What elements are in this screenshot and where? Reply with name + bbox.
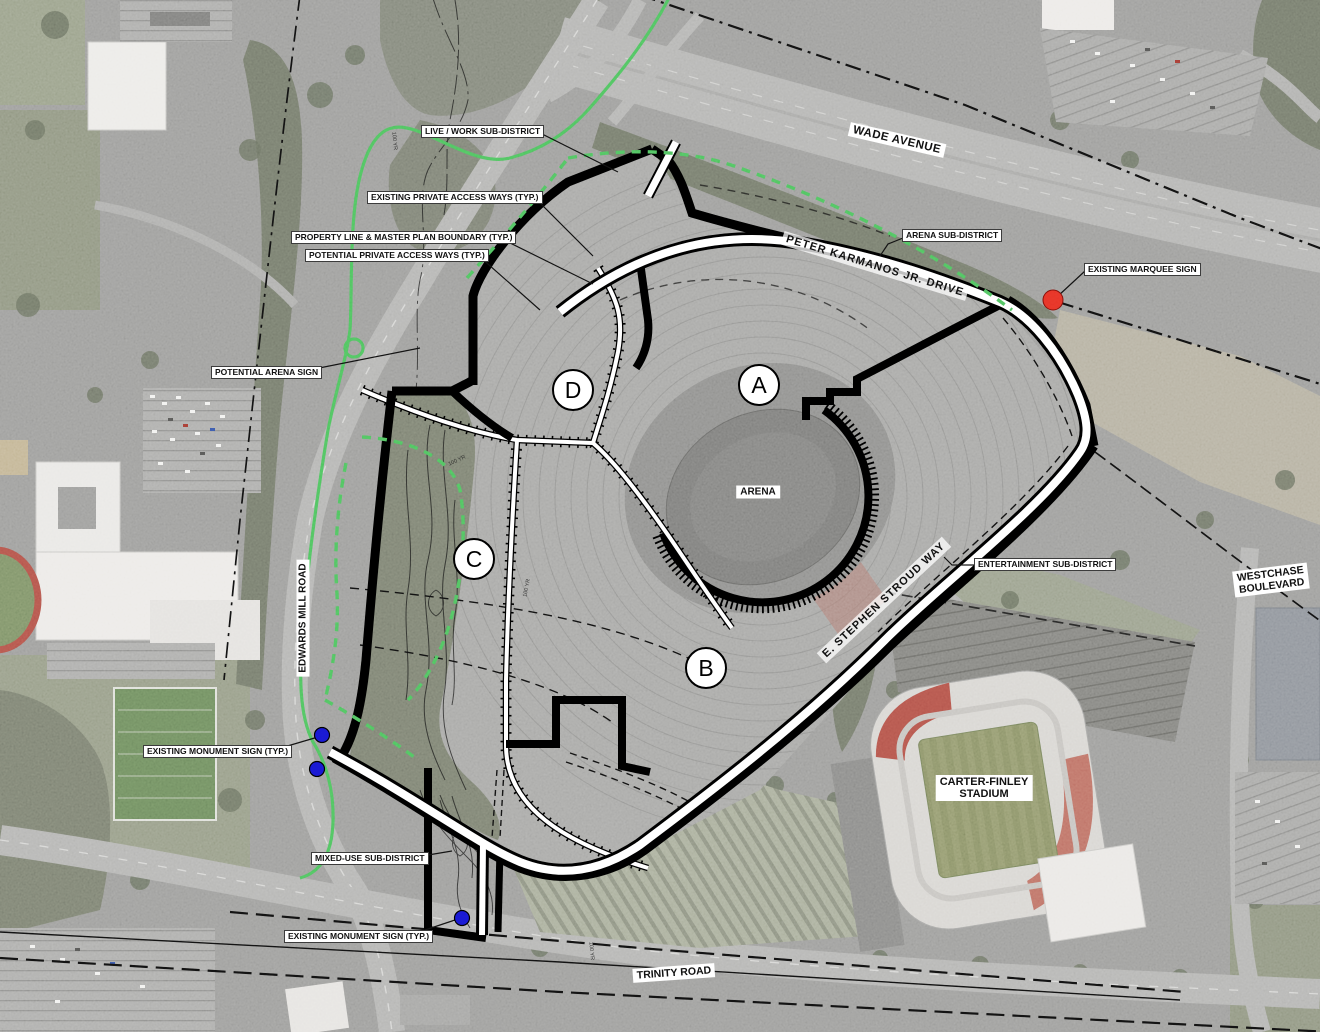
callout-property-line: PROPERTY LINE & MASTER PLAN BOUNDARY (TY… <box>291 231 516 244</box>
callout-potential-arena-sign: POTENTIAL ARENA SIGN <box>211 366 322 379</box>
callout-existing-marquee-sign: EXISTING MARQUEE SIGN <box>1084 263 1201 276</box>
parcel-circle-d: D <box>552 369 594 411</box>
parcel-circle-b: B <box>685 647 727 689</box>
callout-existing-monument-sign-2: EXISTING MONUMENT SIGN (TYP.) <box>284 930 433 943</box>
parcel-circle-c: C <box>453 538 495 580</box>
carter-finley-line2: STADIUM <box>959 788 1008 800</box>
road-label-edwards-mill: EDWARDS MILL ROAD <box>297 559 310 676</box>
plan-overlay <box>0 0 1320 1032</box>
callout-live-work: LIVE / WORK SUB-DISTRICT <box>421 125 544 138</box>
callout-existing-monument-sign: EXISTING MONUMENT SIGN (TYP.) <box>143 745 292 758</box>
master-plan-map: LIVE / WORK SUB-DISTRICT EXISTING PRIVAT… <box>0 0 1320 1032</box>
place-label-arena: ARENA <box>736 486 780 499</box>
carter-finley-line1: CARTER-FINLEY <box>940 776 1029 788</box>
callout-existing-access: EXISTING PRIVATE ACCESS WAYS (TYP.) <box>367 191 543 204</box>
place-label-carter-finley: CARTER-FINLEY STADIUM <box>936 775 1033 801</box>
parcel-circle-a: A <box>738 364 780 406</box>
callout-potential-access: POTENTIAL PRIVATE ACCESS WAYS (TYP.) <box>305 249 489 262</box>
callout-entertainment-subdistrict: ENTERTAINMENT SUB-DISTRICT <box>974 558 1116 571</box>
aerial-grain <box>0 0 1320 1032</box>
callout-mixed-use-subdistrict: MIXED-USE SUB-DISTRICT <box>311 852 429 865</box>
callout-arena-subdistrict: ARENA SUB-DISTRICT <box>902 229 1002 242</box>
